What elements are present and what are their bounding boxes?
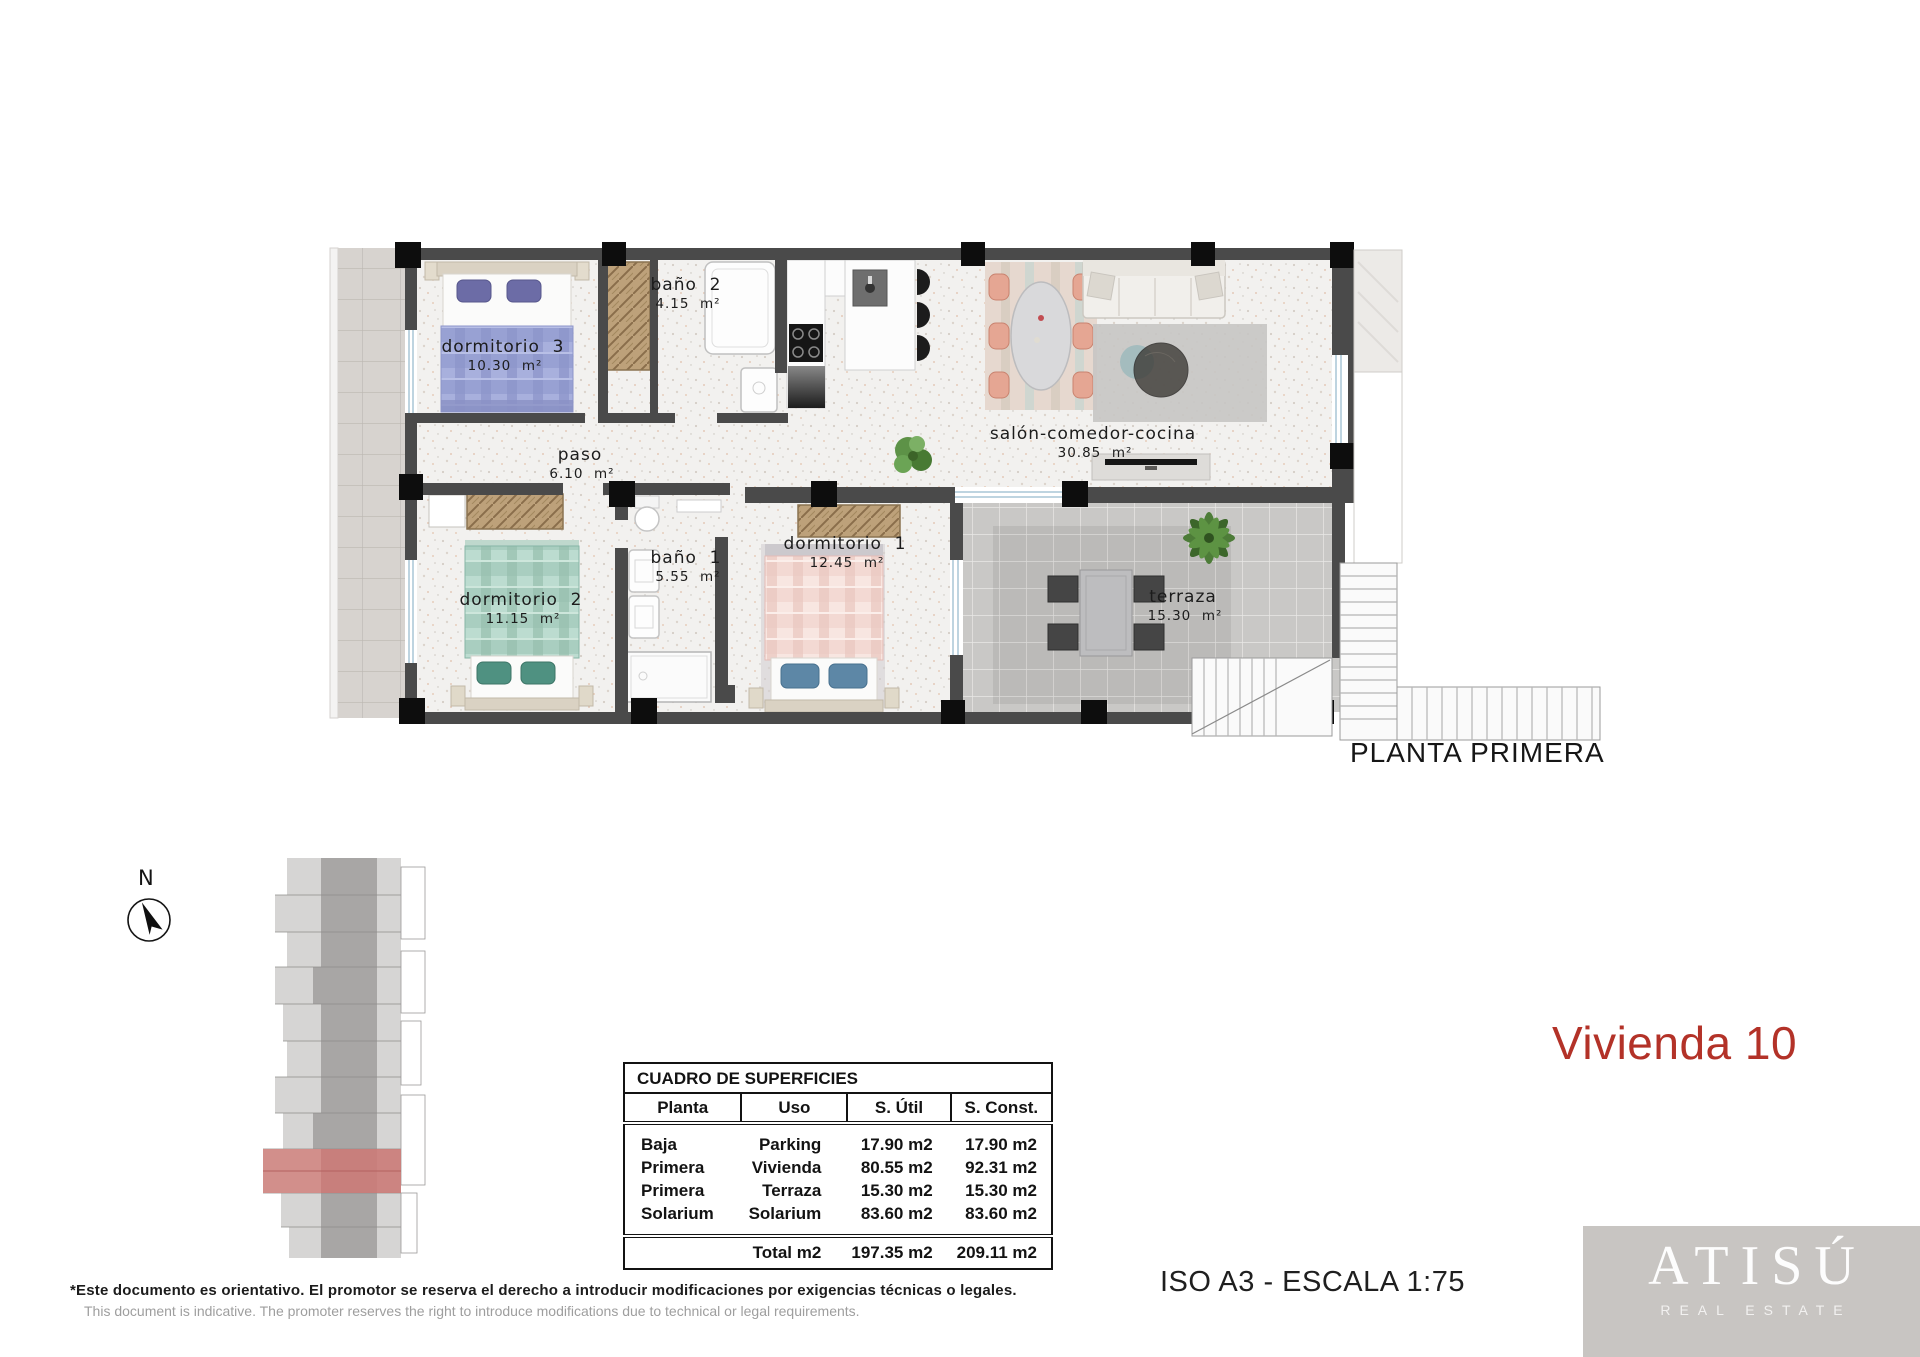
total-label: Total m2 <box>741 1236 847 1269</box>
brand-tagline: REAL ESTATE <box>1583 1302 1920 1318</box>
side-overhang <box>1354 250 1402 563</box>
compass <box>118 890 180 952</box>
col-header-planta: Planta <box>624 1093 741 1122</box>
room-label-dormitorio-2: dormitorio 2 <box>460 590 583 610</box>
room-area-paso: 6.10 m² <box>549 466 614 482</box>
room-label-terraza: terraza <box>1149 587 1217 607</box>
floor-plan-drawing <box>325 238 1605 748</box>
table-row: Primera Terraza 15.30 m2 15.30 m2 <box>624 1179 1052 1202</box>
room-area-dormitorio-1: 12.45 m² <box>810 555 885 571</box>
total-util: 197.35 m2 <box>847 1236 950 1269</box>
floor-plan <box>325 238 1605 748</box>
room-area-bano-1: 5.55 m² <box>655 569 720 585</box>
room-area-dormitorio-3: 10.30 m² <box>468 358 543 374</box>
surfaces-table: CUADRO DE SUPERFICIES Planta Uso S. Útil… <box>623 1062 1053 1270</box>
north-arrow-icon <box>118 890 180 952</box>
palm-plant <box>1183 512 1235 564</box>
table-row: Solarium Solarium 83.60 m2 83.60 m2 <box>624 1202 1052 1235</box>
room-area-salon: 30.85 m² <box>1058 445 1133 461</box>
dining-set <box>985 262 1097 410</box>
room-label-bano-1: baño 1 <box>650 548 721 568</box>
unit-title: Vivienda 10 <box>1552 1016 1797 1070</box>
table-total-row: Total m2 197.35 m2 209.11 m2 <box>624 1236 1052 1269</box>
col-header-uso: Uso <box>741 1093 847 1122</box>
key-plan <box>225 855 440 1267</box>
building-core <box>321 858 377 1258</box>
room-label-bano-2: baño 2 <box>650 275 721 295</box>
brochure-page: dormitorio 3 10.30 m² baño 2 4.15 m² pas… <box>0 0 1920 1357</box>
col-header-s-util: S. Útil <box>847 1093 950 1122</box>
brand-logo: ATISÚ REAL ESTATE <box>1583 1226 1920 1357</box>
room-label-dormitorio-3: dormitorio 3 <box>442 337 565 357</box>
table-row: Baja Parking 17.90 m2 17.90 m2 <box>624 1123 1052 1156</box>
room-label-paso: paso <box>558 445 602 465</box>
room-area-bano-2: 4.15 m² <box>655 296 720 312</box>
plan-caption: PLANTA PRIMERA <box>1350 737 1605 769</box>
disclaimer-english: This document is indicative. The promote… <box>84 1303 860 1319</box>
scale-note: ISO A3 - ESCALA 1:75 <box>1160 1266 1465 1299</box>
surfaces-table-title: CUADRO DE SUPERFICIES <box>624 1063 1052 1093</box>
room-label-salon: salón-comedor-cocina <box>990 424 1196 444</box>
table-row: Primera Vivienda 80.55 m2 92.31 m2 <box>624 1156 1052 1179</box>
key-plan-drawing <box>225 855 440 1267</box>
compass-north-label: N <box>138 866 154 890</box>
room-area-terraza: 15.30 m² <box>1148 608 1223 624</box>
closet-hall <box>605 262 650 370</box>
exterior-tile-strip <box>330 248 405 718</box>
room-area-dormitorio-2: 11.15 m² <box>486 611 561 627</box>
total-const: 209.11 m2 <box>951 1236 1052 1269</box>
disclaimer-spanish: *Este documento es orientativo. El promo… <box>70 1282 1017 1299</box>
col-header-s-const: S. Const. <box>951 1093 1052 1122</box>
brand-name: ATISÚ <box>1583 1236 1920 1298</box>
terrace-outlines <box>401 867 425 1253</box>
room-label-dormitorio-1: dormitorio 1 <box>784 534 907 554</box>
